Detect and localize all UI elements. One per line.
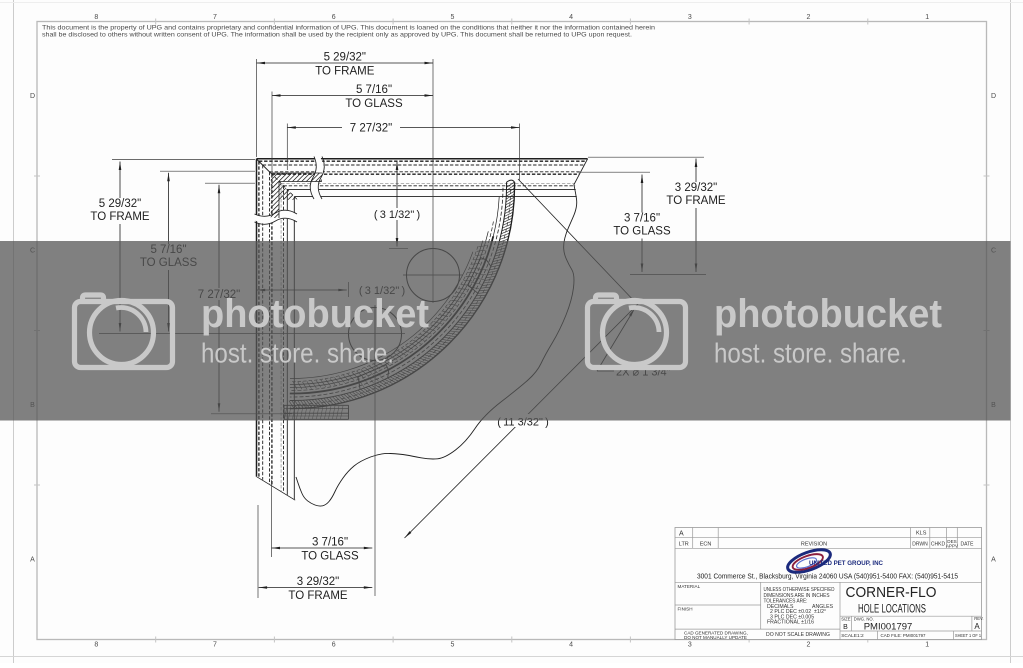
svg-text:B: B [843,624,848,631]
svg-text:ECN: ECN [700,542,712,548]
svg-text:TO GLASS: TO GLASS [301,551,359,563]
svg-text:5 7/16": 5 7/16" [356,84,392,96]
svg-text:A: A [30,557,35,564]
svg-text:UNITED PET GROUP, INC: UNITED PET GROUP, INC [809,560,883,567]
svg-text:7: 7 [213,14,217,21]
svg-text:7 27/32": 7 27/32" [350,123,392,135]
svg-text:3 7/16": 3 7/16" [624,213,660,225]
svg-text:host. store. share.: host. store. share. [714,338,907,369]
svg-text:PMI001797: PMI001797 [864,621,913,632]
svg-text:( 3 1/32" ): ( 3 1/32" ) [374,209,420,221]
svg-text:7: 7 [213,642,217,649]
svg-text:LTR: LTR [679,542,689,548]
svg-text:host. store. share.: host. store. share. [201,338,394,369]
svg-text:APPV: APPV [946,543,959,548]
svg-text:FRACTIONAL ±1/16: FRACTIONAL ±1/16 [767,620,814,626]
svg-text:5: 5 [450,14,454,21]
svg-text:photobucket: photobucket [201,292,429,336]
svg-text:8: 8 [94,14,98,21]
svg-text:DO NOT SCALE DRAWING: DO NOT SCALE DRAWING [766,632,830,638]
svg-text:TO GLASS: TO GLASS [345,98,403,110]
svg-text:A: A [679,531,684,538]
svg-text:2: 2 [807,642,811,649]
svg-text:DATE: DATE [961,541,975,547]
svg-text:3: 3 [688,14,692,21]
svg-text:3: 3 [688,642,692,649]
svg-text:MATERIAL: MATERIAL [678,584,701,589]
svg-text:A: A [974,622,980,631]
svg-text:6: 6 [332,14,336,21]
svg-text:4: 4 [569,14,573,21]
svg-text:2: 2 [807,14,811,21]
svg-text:4: 4 [569,642,573,649]
svg-text:D: D [30,93,35,100]
svg-text:DRWN: DRWN [912,541,928,547]
svg-text:KLS: KLS [916,531,927,537]
svg-text:TO FRAME: TO FRAME [90,211,150,223]
svg-text:6: 6 [332,642,336,649]
svg-text:DO NOT MANUALLY UPDATE: DO NOT MANUALLY UPDATE [684,635,747,640]
svg-text:TO GLASS: TO GLASS [613,226,671,238]
svg-text:D: D [991,93,996,100]
svg-text:FINISH: FINISH [678,607,693,612]
svg-text:3 29/32": 3 29/32" [297,576,339,588]
svg-text:5: 5 [450,642,454,649]
svg-text:TO FRAME: TO FRAME [288,590,348,602]
svg-text:CHKD: CHKD [931,541,946,547]
svg-text:HOLE LOCATIONS: HOLE LOCATIONS [858,604,926,616]
svg-text:5 29/32": 5 29/32" [324,52,366,64]
svg-text:SIZE: SIZE [841,617,851,622]
svg-text:TO FRAME: TO FRAME [315,66,375,78]
svg-text:REVISION: REVISION [801,541,827,547]
svg-text:CAD FILE: PMI001797: CAD FILE: PMI001797 [881,633,926,639]
svg-text:SHEET 1 OF 1: SHEET 1 OF 1 [955,633,981,639]
svg-text:shall be disclosed to others w: shall be disclosed to others without wri… [42,32,632,39]
svg-text:8: 8 [94,642,98,649]
svg-text:3001 Commerce St., Blacksburg,: 3001 Commerce St., Blacksburg, Virginia … [697,574,958,581]
svg-text:1: 1 [925,642,929,649]
svg-text:3 29/32": 3 29/32" [675,182,717,194]
svg-text:This document is the property: This document is the property of UPG and… [42,25,655,32]
svg-text:SCALE: SCALE [841,633,857,639]
svg-text:±1/2°: ±1/2° [814,609,826,615]
svg-text:TO FRAME: TO FRAME [666,195,726,207]
svg-text:A: A [991,557,996,564]
svg-text:3 7/16": 3 7/16" [312,537,348,549]
svg-text:5 29/32": 5 29/32" [99,198,141,210]
svg-text:CORNER-FLO: CORNER-FLO [846,584,937,601]
svg-text:photobucket: photobucket [714,292,942,336]
svg-text:REV.: REV. [974,616,983,621]
svg-text:1:2: 1:2 [857,633,864,639]
svg-text:1: 1 [925,14,929,21]
